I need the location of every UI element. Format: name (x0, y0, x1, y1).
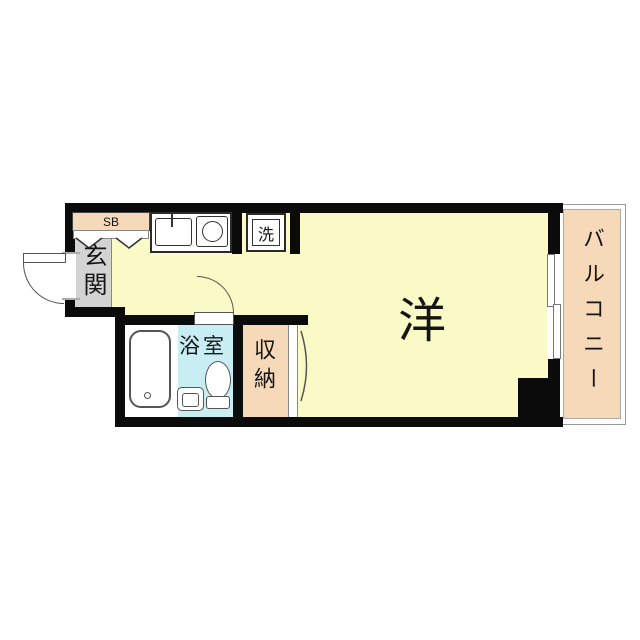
bathroom-label: 浴室 (179, 330, 227, 360)
exterior-cutout (75, 317, 115, 417)
storage-sliding-door (288, 325, 298, 417)
main-room-label: 洋 (398, 281, 446, 351)
window-pane-upper (547, 254, 555, 307)
floor-plan: バルコニー SB 玄関 洗 浴室 収納 (0, 0, 640, 640)
balcony: バルコニー (558, 204, 626, 425)
shoe-box-label: SB (103, 215, 119, 229)
washing-machine-space: 洗 (246, 213, 286, 252)
faucet-icon (171, 212, 173, 227)
washing-machine-label: 洗 (258, 221, 274, 245)
burner-ring-icon (202, 221, 223, 242)
bathtub-drain-icon (144, 392, 151, 399)
wall-stub-kitchen-left (232, 203, 242, 254)
window-pane-lower (553, 304, 561, 359)
bathroom-door-leaf (194, 312, 234, 325)
structural-pillar (518, 378, 560, 427)
wall-bath-left (115, 317, 125, 427)
toilet (205, 361, 231, 399)
shoe-box: SB (72, 212, 150, 231)
balcony-deck: バルコニー (563, 209, 621, 419)
storage-door-swing-icon (299, 329, 313, 403)
toilet-base (206, 396, 230, 409)
entrance-label: 玄関 (80, 243, 104, 301)
storage-label: 収納 (252, 338, 274, 396)
washing-machine-inner: 洗 (252, 219, 280, 246)
entrance-door-leaf (23, 253, 66, 263)
entrance-door-swing-icon (23, 263, 64, 304)
balcony-label: バルコニー (581, 227, 603, 402)
wall-bath-storage-divider (233, 325, 243, 417)
kitchen-sink (155, 218, 192, 246)
entrance-door-frame-bottom (62, 298, 80, 300)
wall-bottom (115, 417, 563, 427)
wall-stub-kitchen-right (290, 203, 300, 254)
wash-basin-bowl-icon (182, 393, 199, 407)
